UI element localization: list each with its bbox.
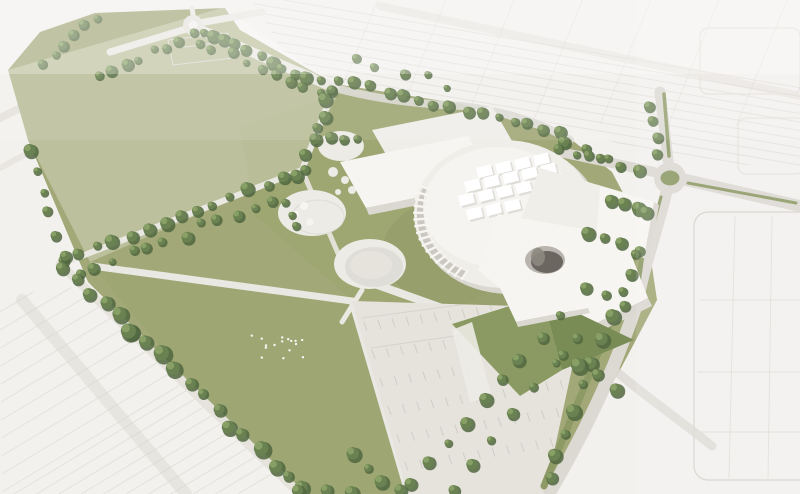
courtyard-void-wall [531, 248, 545, 266]
bird [302, 356, 304, 358]
bird [261, 356, 263, 358]
bird [287, 338, 289, 340]
bird [265, 346, 267, 348]
plaza-circle [328, 167, 338, 177]
bird [288, 349, 290, 351]
bird [281, 336, 283, 338]
bird [251, 334, 253, 336]
plaza-planter [300, 202, 308, 210]
aerial-rendering [0, 0, 800, 494]
bird [295, 343, 297, 345]
east-haze [636, 0, 800, 494]
plaza-circle [341, 176, 349, 184]
bird [281, 340, 283, 342]
rendering-stage: Aerial 3D rendering of a cultural-campus… [0, 0, 800, 494]
plaza-planter [307, 219, 314, 226]
bird [290, 340, 292, 342]
bird [301, 339, 303, 341]
bird [282, 357, 284, 359]
sunken-plaza-floor [350, 251, 392, 279]
bird [294, 340, 296, 342]
plaza-circle [335, 189, 341, 195]
bird [273, 344, 275, 346]
bird [265, 344, 267, 346]
bird [261, 337, 263, 339]
